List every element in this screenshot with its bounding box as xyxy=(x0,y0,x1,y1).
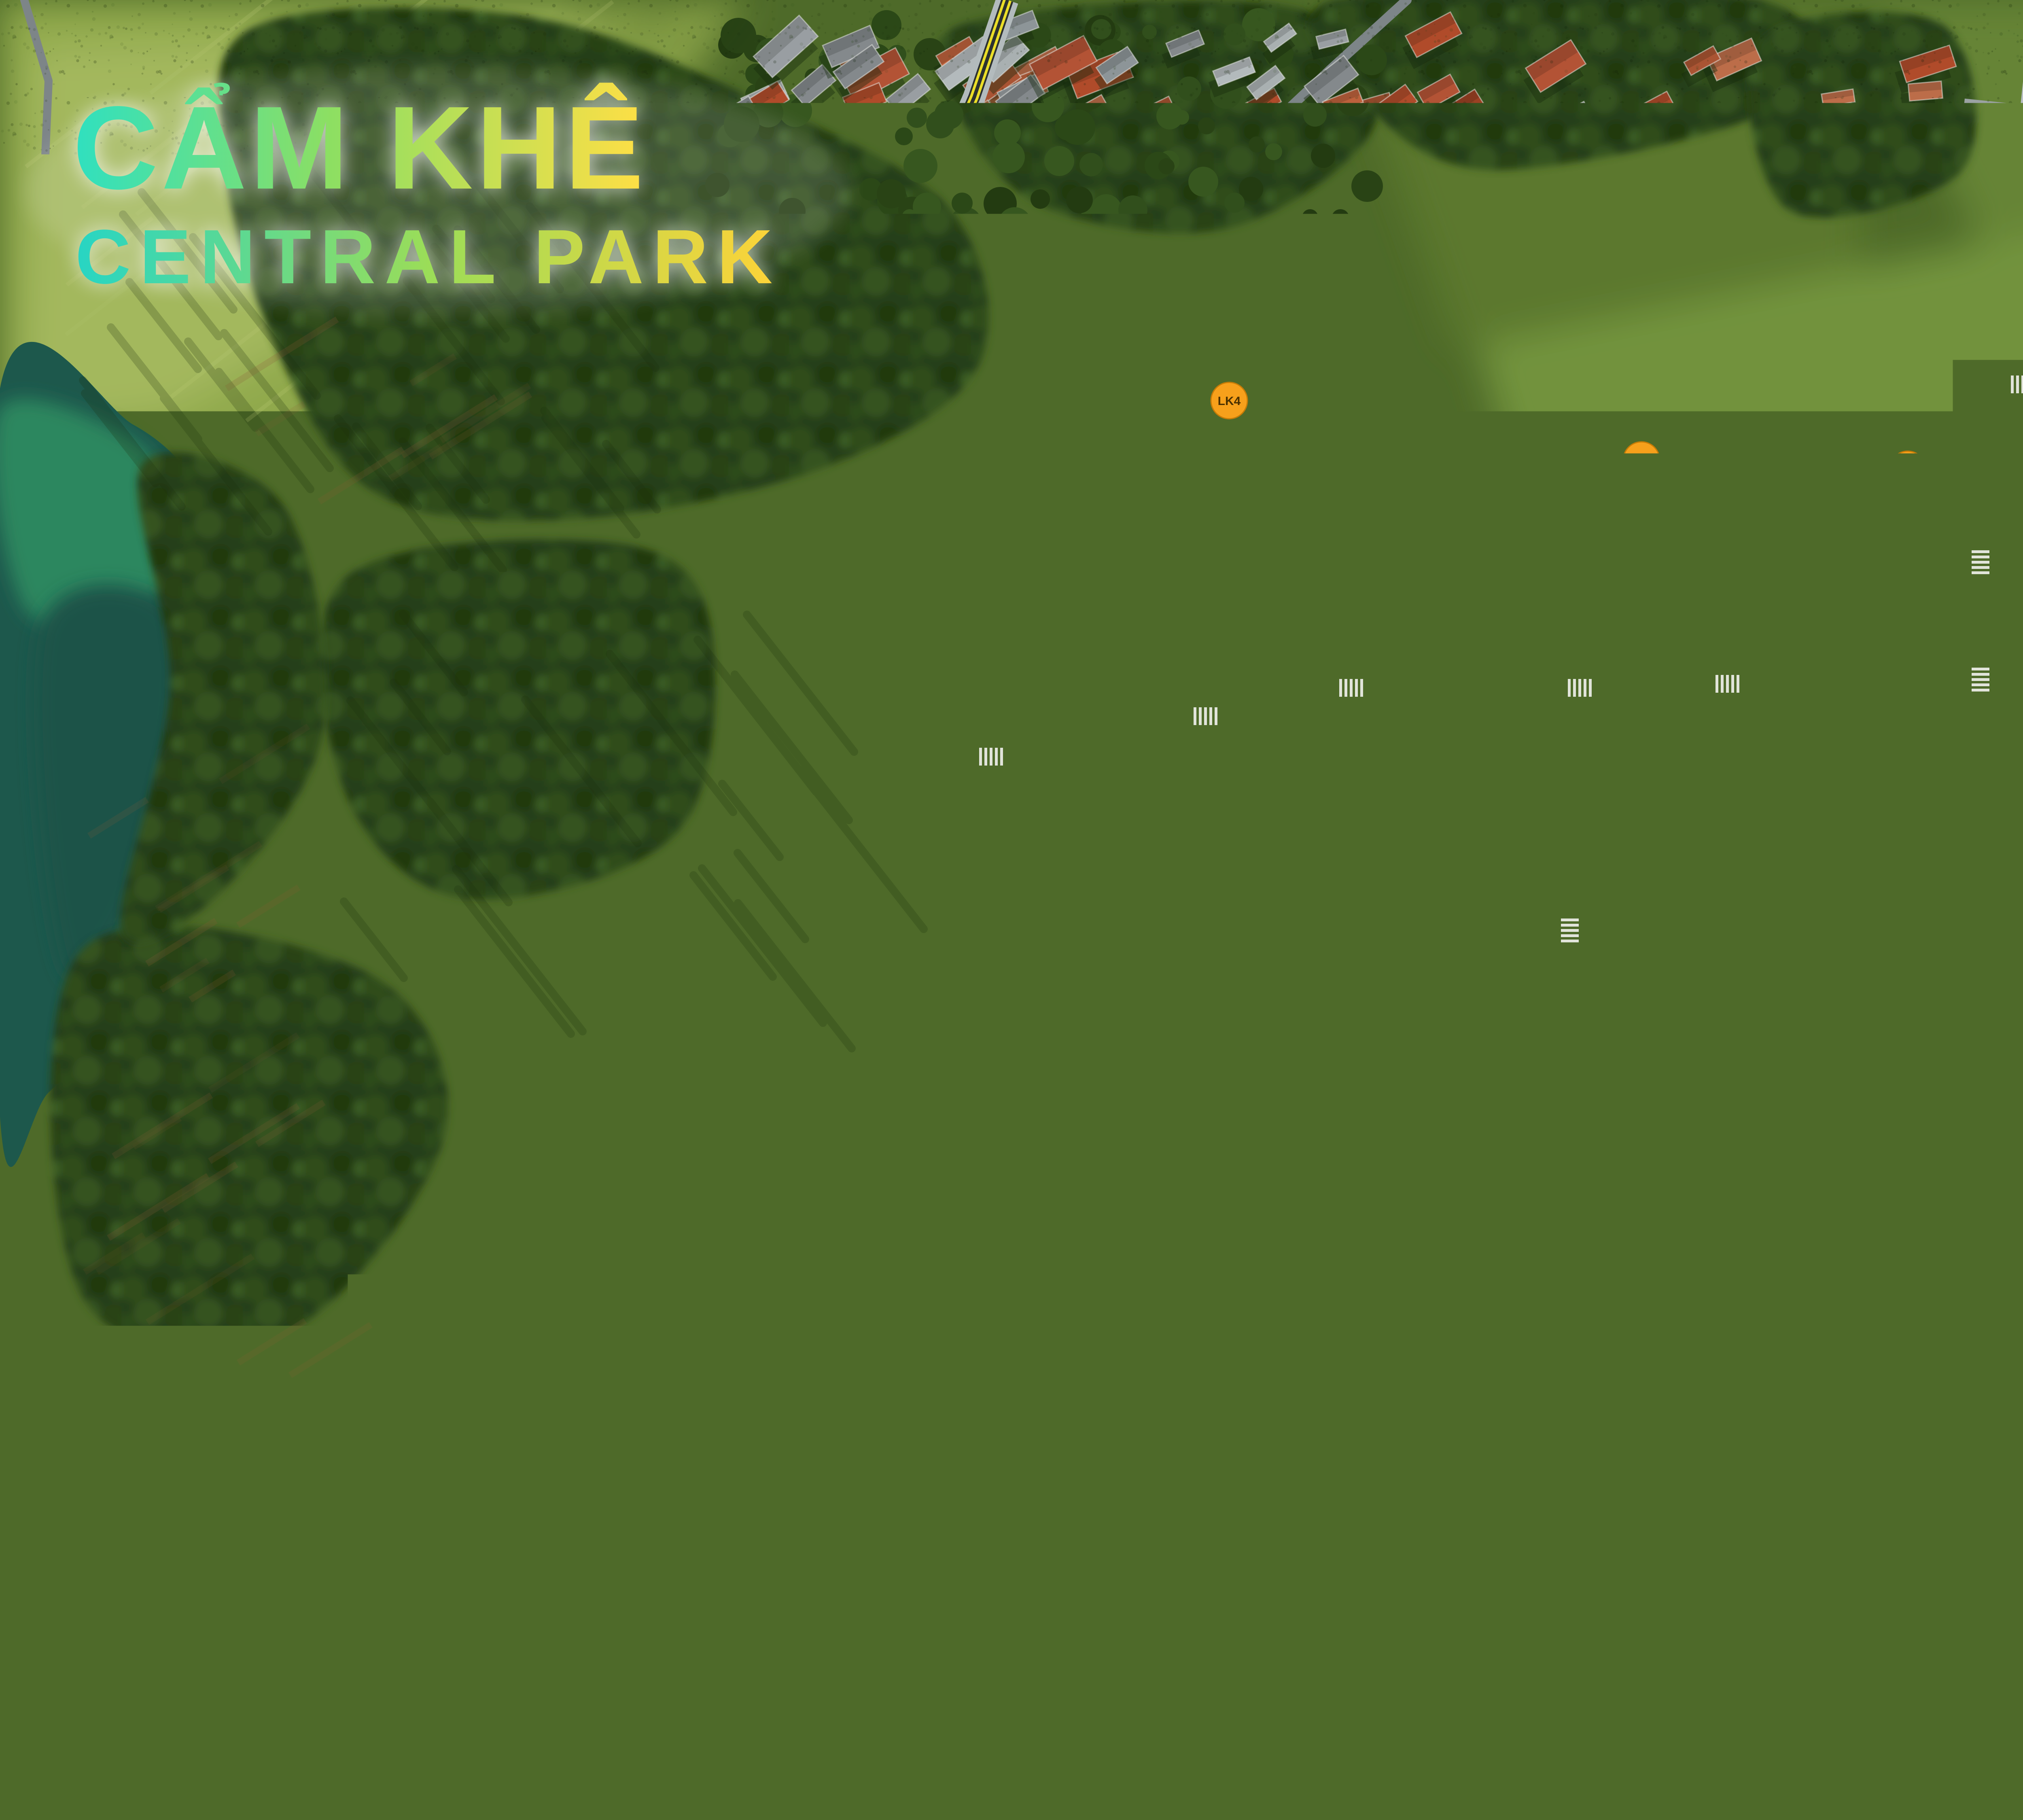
svg-text:Y TẾ: Y TẾ xyxy=(639,699,659,709)
svg-text:LK6: LK6 xyxy=(1552,955,1575,968)
svg-text:LK1: LK1 xyxy=(1003,798,1026,811)
svg-text:LK4: LK4 xyxy=(1218,395,1241,408)
svg-text:BT1: BT1 xyxy=(1630,454,1653,467)
svg-text:BT2: BT2 xyxy=(1693,571,1716,584)
svg-text:BT5: BT5 xyxy=(1777,1231,1800,1245)
svg-text:CẨM KHÊ: CẨM KHÊ xyxy=(73,81,647,214)
svg-text:TRUNG TÂM: TRUNG TÂM xyxy=(1400,594,1497,615)
svg-text:THPT: THPT xyxy=(1108,941,1135,953)
svg-text:BÃI ĐỖ XE: BÃI ĐỖ XE xyxy=(1297,482,1315,564)
svg-text:CENTRAL PARK: CENTRAL PARK xyxy=(75,214,781,300)
svg-text:TRƯỜNG: TRƯỜNG xyxy=(1098,929,1145,941)
svg-text:LK5: LK5 xyxy=(1260,534,1283,547)
svg-text:TRUNG TÂM: TRUNG TÂM xyxy=(622,689,676,699)
svg-text:LK15: LK15 xyxy=(1947,1354,1974,1366)
svg-text:LK7: LK7 xyxy=(1896,463,1919,477)
svg-text:BT3: BT3 xyxy=(1851,866,1874,879)
svg-text:LK3: LK3 xyxy=(1347,822,1370,835)
svg-text:CẨM KHÊ: CẨM KHÊ xyxy=(1097,953,1146,965)
svg-text:CẨM KHÊ: CẨM KHÊ xyxy=(628,709,670,719)
svg-text:LK2: LK2 xyxy=(1142,650,1165,664)
svg-text:BÃI ĐỖ XE: BÃI ĐỖ XE xyxy=(1883,537,1954,552)
svg-text:BT4: BT4 xyxy=(1696,805,1720,819)
